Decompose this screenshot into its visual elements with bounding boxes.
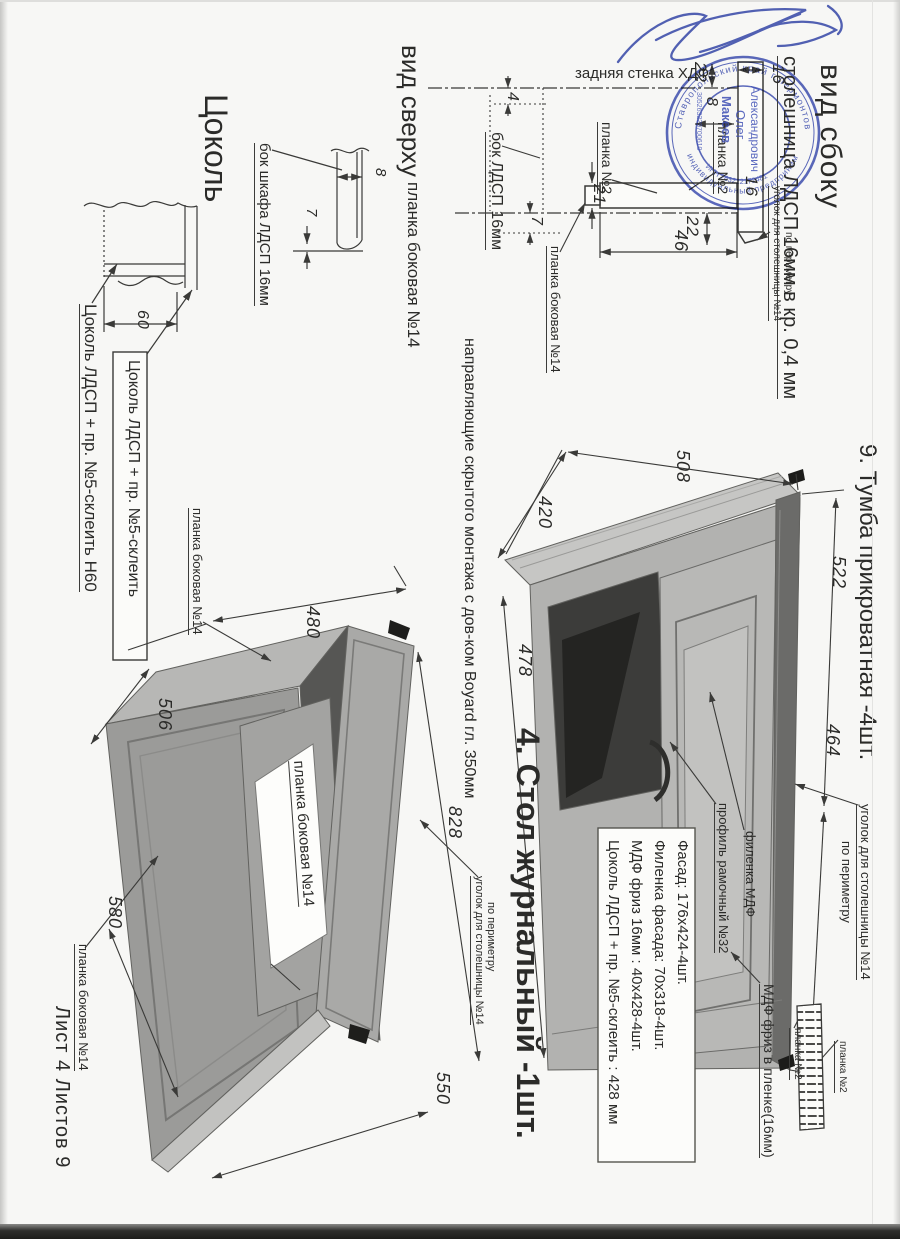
dim-60: 60 xyxy=(133,310,150,330)
cabinet-corner-note-1: уголок для столешницы №14 xyxy=(856,804,872,980)
plinth-glue-note: Цоколь ЛДСП + пр. №5-склеить Н60 xyxy=(79,304,99,592)
paper-crease xyxy=(872,0,873,1239)
cabinet-side-label: бок шкафа ЛДСП 16мм xyxy=(254,143,272,306)
dim-7: 7 xyxy=(527,216,544,226)
table-corner-note-2: по периметру xyxy=(484,902,496,971)
table-plank-label-bottom: планка боковая №14 xyxy=(74,944,90,1071)
dim-550: 550 xyxy=(433,1072,452,1105)
dim-420: 420 xyxy=(535,496,554,529)
dim-16-top: 16 xyxy=(769,64,787,85)
scan-edge-right xyxy=(893,0,900,1239)
sheet-footer: Лист 4 Листов 9 xyxy=(51,1006,72,1168)
stamp-name-last: Макеев xyxy=(719,96,733,143)
plinth-glue-note-boxed: Цоколь ЛДСП + пр. №5-склеить xyxy=(124,360,141,597)
dim-506: 506 xyxy=(155,698,174,731)
dim-522: 522 xyxy=(829,556,848,589)
frieze-label: МДФ фриз в пленке(16мм) xyxy=(759,984,776,1158)
signature xyxy=(618,6,842,62)
scan-edge-left xyxy=(0,0,8,1239)
stamp-ogrn: 305263229700610 xyxy=(695,92,702,150)
table-plank-label-top: планка боковая №14 xyxy=(188,508,204,635)
slides-note: направляющие скрытого монтажа с дов-ком … xyxy=(460,338,477,798)
dim-8b: 8 xyxy=(372,168,388,177)
dim-22-top: 22 xyxy=(691,62,709,83)
spec-line-3: МДФ фриз 16мм : 40х428-4шт. xyxy=(628,840,644,1052)
scanned-drawing-page: Ставропольский край г.Лермонтов индивиду… xyxy=(0,0,900,1239)
side-view-title: вид сбоку xyxy=(815,64,847,209)
top-view-subtitle: планка боковая №14 xyxy=(404,182,422,348)
spec-line-1: Фасад: 176х424-4шт. xyxy=(674,840,690,985)
back-wall-label: задняя стенка ХДФ xyxy=(575,66,709,82)
dim-478: 478 xyxy=(515,644,534,677)
dim-580: 580 xyxy=(105,896,124,929)
side-ldsp-label: бок ЛДСП 16мм xyxy=(485,132,504,250)
top-view-plank-label: планка боковая №14 xyxy=(546,246,562,373)
profile-label: профиль рамочный №32 xyxy=(714,803,730,953)
cabinet-corner-note-2: по периметру xyxy=(839,841,853,923)
dim-16-mid: 16 xyxy=(742,176,760,197)
dim-480: 480 xyxy=(303,606,322,639)
plank2-a-label: планка №2 xyxy=(790,1028,803,1080)
dim-46: 46 xyxy=(671,230,690,252)
panel-mdf-label: филенка МДФ xyxy=(743,831,757,917)
table-title: 4. Стол журнальный -1шт. xyxy=(510,728,544,1139)
dim-7b: 7 xyxy=(303,208,319,217)
dim-8: 8 xyxy=(702,97,719,107)
dim-828: 828 xyxy=(445,806,464,839)
scan-edge-bottom xyxy=(0,1224,900,1239)
cabinet-title: 9. Тумба прикроватная -4шт. xyxy=(855,444,880,760)
dim-508: 508 xyxy=(673,450,692,483)
plinth-title: Цоколь xyxy=(198,94,232,202)
side-corner-note-1: уголок для столешницы №14 xyxy=(769,186,782,321)
dim-21: 21 xyxy=(590,184,608,205)
dim-4: 4 xyxy=(503,92,520,102)
spec-line-4: Цоколь ЛДСП + пр. №5-склеить : 428 мм xyxy=(605,840,621,1125)
spec-line-2: Филенка фасада: 70х318-4шт. xyxy=(651,840,667,1050)
table-corner-note-1: уголок для столешницы №14 xyxy=(470,876,484,1025)
stamp-name-middle: Александрович xyxy=(748,86,761,172)
dim-464: 464 xyxy=(823,724,842,757)
stamp-name-first: Олег xyxy=(733,110,747,140)
side-corner-note-2: по периметру xyxy=(783,232,794,295)
scan-edge-top xyxy=(0,0,900,2)
plank2-b-label: планка №2 xyxy=(835,1041,848,1093)
top-view-title: вид сверху xyxy=(397,45,424,177)
